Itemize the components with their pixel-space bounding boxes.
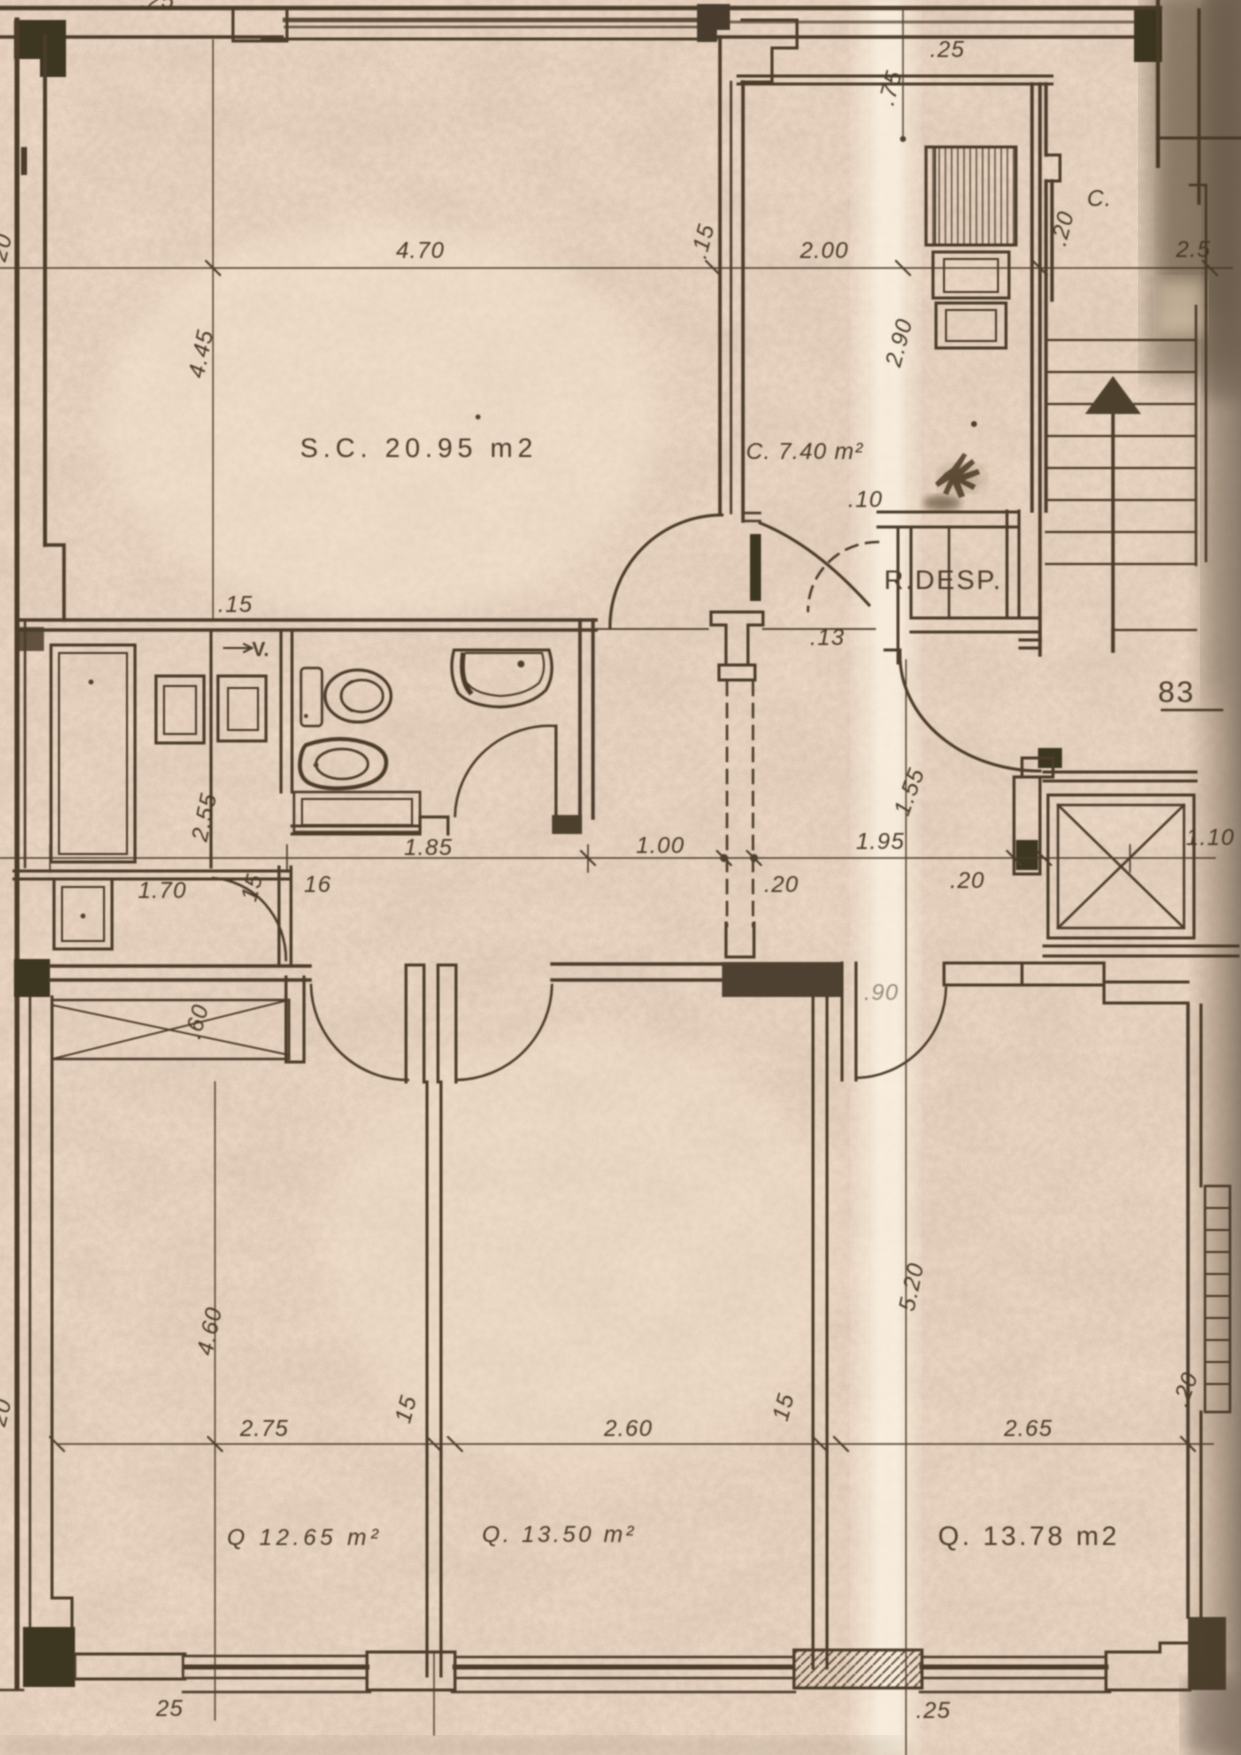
- svg-text:.25: .25: [140, 0, 175, 13]
- svg-text:Q. 13.78 m2: Q. 13.78 m2: [938, 1521, 1120, 1551]
- svg-text:2.75: 2.75: [239, 1415, 289, 1441]
- svg-text:.25: .25: [916, 1697, 951, 1723]
- svg-text:4.70: 4.70: [396, 237, 445, 263]
- svg-text:1.95: 1.95: [856, 828, 905, 854]
- svg-text:16: 16: [304, 871, 332, 897]
- svg-text:Q 12.65 m²: Q 12.65 m²: [227, 1524, 382, 1550]
- svg-text:1.10: 1.10: [1186, 824, 1235, 850]
- svg-text:2.65: 2.65: [1003, 1415, 1053, 1441]
- svg-text:.10: .10: [848, 486, 883, 512]
- svg-text:S.C. 20.95 m2: S.C. 20.95 m2: [300, 433, 538, 463]
- svg-text:83: 83: [1158, 676, 1195, 709]
- svg-text:V.: V.: [252, 639, 269, 661]
- svg-text:.90: .90: [864, 979, 899, 1005]
- svg-text:R.DESP.: R.DESP.: [884, 565, 1003, 595]
- svg-text:2.00: 2.00: [799, 237, 849, 263]
- svg-text:.15: .15: [218, 591, 253, 617]
- svg-text:C.: C.: [1087, 185, 1112, 211]
- svg-text:.20: .20: [764, 871, 799, 897]
- svg-text:Q. 13.50 m²: Q. 13.50 m²: [482, 1521, 636, 1547]
- svg-text:1.70: 1.70: [138, 877, 187, 903]
- svg-text:.13: .13: [810, 624, 845, 650]
- svg-text:2.5: 2.5: [1175, 236, 1211, 262]
- svg-text:1.00: 1.00: [636, 832, 685, 858]
- svg-text:2.60: 2.60: [603, 1415, 653, 1441]
- svg-text:1.85: 1.85: [404, 834, 453, 860]
- svg-text:.20: .20: [950, 867, 985, 893]
- svg-text:.25: .25: [930, 36, 965, 62]
- svg-text:C. 7.40 m²: C. 7.40 m²: [746, 438, 864, 464]
- svg-text:25: 25: [155, 1695, 184, 1721]
